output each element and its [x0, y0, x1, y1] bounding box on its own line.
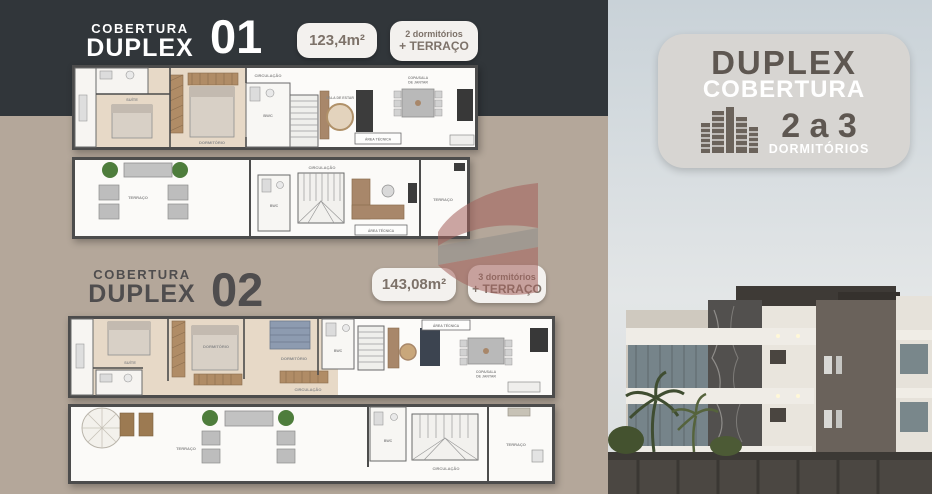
- floorplan-duplex02-terrace: TERRAÇO BWC CIRCULAÇÃO TERRAÇO: [68, 404, 555, 484]
- section1-number: 01: [210, 13, 262, 60]
- svg-text:DORMITÓRIO: DORMITÓRIO: [203, 344, 229, 349]
- svg-text:DORMITÓRIO: DORMITÓRIO: [199, 140, 225, 145]
- svg-text:TERRAÇO: TERRAÇO: [176, 446, 196, 451]
- side-badge-range: 2 a 3: [781, 111, 857, 142]
- svg-text:ÁREA TÉCNICA: ÁREA TÉCNICA: [365, 137, 392, 142]
- side-badge: DUPLEX COBERTURA: [658, 34, 910, 168]
- svg-text:COPA/SALA: COPA/SALA: [408, 76, 429, 80]
- svg-text:SALA DE ESTAR: SALA DE ESTAR: [326, 96, 354, 100]
- floorplan-duplex01-level1: DORMITÓRIO SUÍTE BWC CIRCULAÇÃO SALA DE …: [72, 65, 478, 150]
- svg-text:DE JANTAR: DE JANTAR: [408, 81, 428, 85]
- section1-rooms-line2: + TERRAÇO: [399, 40, 469, 52]
- svg-text:BWC: BWC: [334, 349, 343, 353]
- svg-text:ÁREA TÉCNICA: ÁREA TÉCNICA: [433, 323, 460, 328]
- section2-number: 02: [211, 266, 263, 313]
- section1-rooms-badge: 2 dormitórios + TERRAÇO: [390, 21, 478, 61]
- svg-text:CIRCULAÇÃO: CIRCULAÇÃO: [255, 73, 282, 78]
- side-badge-dormitorios: DORMITÓRIOS: [769, 143, 870, 156]
- svg-text:DE JANTAR: DE JANTAR: [476, 375, 496, 379]
- section1-area-text: 123,4m²: [309, 32, 365, 49]
- floorplans-panel: COBERTURA DUPLEX 01 123,4m² 2 dormitório…: [0, 0, 608, 494]
- section1-title: COBERTURA DUPLEX: [74, 22, 206, 61]
- svg-text:ÁREA TÉCNICA: ÁREA TÉCNICA: [368, 228, 395, 233]
- section2-title: COBERTURA DUPLEX: [76, 268, 208, 307]
- section2-rooms-badge: 3 dormitórios + TERRAÇO: [468, 265, 546, 303]
- section2-rooms-line1: 3 dormitórios: [478, 273, 536, 282]
- floorplan-duplex02-level1: SUÍTE DORMITÓRIO DORMITÓRIO BWC: [68, 316, 555, 398]
- section1-area-badge: 123,4m²: [297, 23, 377, 58]
- section2-area-badge: 143,08m²: [372, 268, 456, 301]
- svg-text:CIRCULAÇÃO: CIRCULAÇÃO: [295, 387, 322, 392]
- svg-text:SUÍTE: SUÍTE: [124, 360, 136, 365]
- svg-text:CIRCULAÇÃO: CIRCULAÇÃO: [433, 466, 460, 471]
- buildings-icon: [699, 105, 763, 155]
- svg-text:CIRCULAÇÃO: CIRCULAÇÃO: [309, 165, 336, 170]
- svg-text:BWC: BWC: [384, 439, 393, 443]
- svg-text:TERRAÇO: TERRAÇO: [128, 195, 148, 200]
- photo-panel: DUPLEX COBERTURA: [608, 0, 932, 494]
- flyer: COBERTURA DUPLEX 01 123,4m² 2 dormitório…: [0, 0, 932, 494]
- svg-text:DORMITÓRIO: DORMITÓRIO: [281, 356, 307, 361]
- section1-title-bottom: DUPLEX: [74, 36, 206, 61]
- svg-text:BWC: BWC: [263, 113, 273, 118]
- section1-rooms-line1: 2 dormitórios: [405, 30, 463, 39]
- svg-text:COPA/SALA: COPA/SALA: [476, 370, 497, 374]
- svg-text:TERRAÇO: TERRAÇO: [433, 197, 453, 202]
- floorplan-duplex01-terrace: TERRAÇO CIRCULAÇÃO BWC ÁREA TÉCNICA: [72, 157, 470, 239]
- section2-area-text: 143,08m²: [382, 276, 446, 293]
- svg-text:SUÍTE: SUÍTE: [126, 97, 138, 102]
- side-badge-duplex: DUPLEX: [711, 47, 857, 78]
- svg-text:TERRAÇO: TERRAÇO: [506, 442, 526, 447]
- section2-title-bottom: DUPLEX: [76, 282, 208, 307]
- side-badge-cobertura: COBERTURA: [703, 78, 865, 102]
- svg-text:BWC: BWC: [270, 204, 279, 208]
- section2-rooms-line2: + TERRAÇO: [472, 283, 542, 295]
